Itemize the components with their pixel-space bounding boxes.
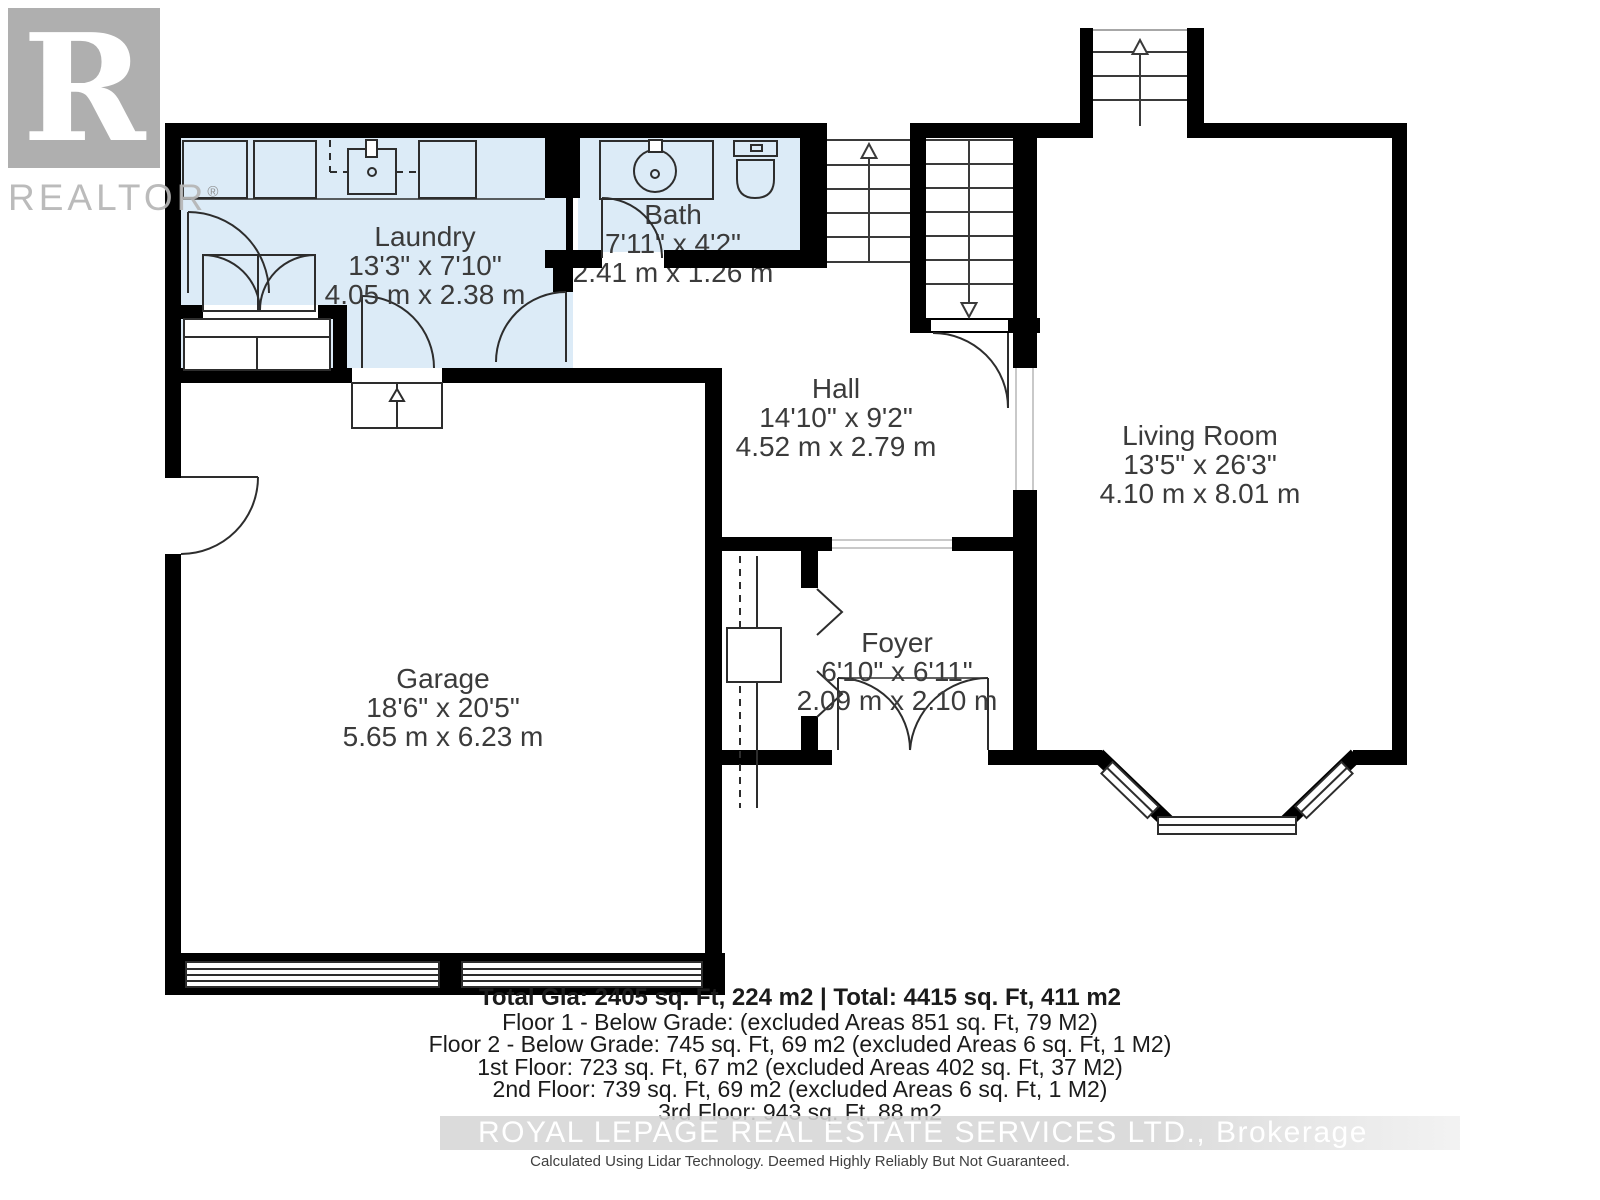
total-area-line: Total Gla: 2405 sq. Ft, 224 m2 | Total: … bbox=[0, 984, 1600, 1011]
room-dims-imperial: 18'6" x 20'5" bbox=[343, 693, 544, 722]
room-dims-imperial: 14'10" x 9'2" bbox=[736, 403, 937, 432]
floor-area-line: 2nd Floor: 739 sq. Ft, 69 m2 (excluded A… bbox=[0, 1078, 1600, 1100]
door-arc bbox=[181, 477, 258, 554]
stairs-down-arrow-icon bbox=[962, 303, 977, 317]
room-label-foyer: Foyer 6'10" x 6'11" 2.09 m x 2.10 m bbox=[797, 628, 998, 715]
door-arc bbox=[203, 255, 260, 311]
room-dims-imperial: 6'10" x 6'11" bbox=[797, 657, 998, 686]
floor-area-line: 1st Floor: 723 sq. Ft, 67 m2 (excluded A… bbox=[0, 1056, 1600, 1078]
room-name: Living Room bbox=[1100, 421, 1301, 450]
room-dims-metric: 4.52 m x 2.79 m bbox=[736, 432, 937, 461]
room-label-garage: Garage 18'6" x 20'5" 5.65 m x 6.23 m bbox=[343, 664, 544, 751]
floor-area-line: Floor 1 - Below Grade: (excluded Areas 8… bbox=[0, 1011, 1600, 1033]
realtor-logo: R REALTOR® bbox=[8, 8, 218, 219]
stairs-down bbox=[926, 140, 1013, 317]
room-dims-metric: 5.65 m x 6.23 m bbox=[343, 722, 544, 751]
registered-trademark-icon: ® bbox=[207, 184, 218, 201]
stairs-upper-flight bbox=[1093, 30, 1187, 126]
dryer-icon bbox=[254, 141, 316, 198]
area-summary: Total Gla: 2405 sq. Ft, 224 m2 | Total: … bbox=[0, 984, 1600, 1123]
room-name: Laundry bbox=[325, 222, 526, 251]
bay-window bbox=[1098, 755, 1356, 834]
realtor-wordmark: REALTOR® bbox=[8, 177, 218, 219]
room-label-hall: Hall 14'10" x 9'2" 4.52 m x 2.79 m bbox=[736, 374, 937, 461]
room-name: Garage bbox=[343, 664, 544, 693]
stairs-up-arrow-icon bbox=[862, 144, 877, 158]
room-dims-metric: 4.10 m x 8.01 m bbox=[1100, 479, 1301, 508]
closet-shelf bbox=[727, 628, 781, 682]
door-arc bbox=[602, 198, 662, 258]
brokerage-watermark: ROYAL LEPAGE REAL ESTATE SERVICES LTD., … bbox=[440, 1116, 1460, 1150]
bath-fixtures bbox=[600, 140, 777, 199]
storage-closet bbox=[184, 319, 330, 370]
faucet-icon bbox=[649, 140, 662, 152]
room-dims-imperial: 13'3" x 7'10" bbox=[325, 251, 526, 280]
room-dims-metric: 4.05 m x 2.38 m bbox=[325, 280, 526, 309]
toilet-tank bbox=[734, 141, 777, 156]
room-dims-imperial: 13'5" x 26'3" bbox=[1100, 450, 1301, 479]
door-arc bbox=[933, 333, 1008, 408]
realtor-logo-icon: R bbox=[8, 8, 160, 168]
garage-entry-steps bbox=[352, 383, 442, 428]
door-arc bbox=[188, 212, 269, 293]
flush-button bbox=[751, 145, 762, 151]
room-dims-metric: 2.09 m x 2.10 m bbox=[797, 686, 998, 715]
room-label-laundry: Laundry 13'3" x 7'10" 4.05 m x 2.38 m bbox=[325, 222, 526, 309]
walls bbox=[165, 28, 1407, 995]
laundry-fixtures bbox=[183, 140, 545, 199]
disclaimer-text: Calculated Using Lidar Technology. Deeme… bbox=[0, 1153, 1600, 1170]
floor-area-line: Floor 2 - Below Grade: 745 sq. Ft, 69 m2… bbox=[0, 1033, 1600, 1055]
stairs-up bbox=[827, 140, 910, 262]
stairs-up-arrow-icon bbox=[1133, 40, 1148, 54]
realtor-logo-letter: R bbox=[23, 14, 146, 162]
faucet-icon bbox=[366, 140, 377, 157]
room-label-living-room: Living Room 13'5" x 26'3" 4.10 m x 8.01 … bbox=[1100, 421, 1301, 508]
appliance-icon bbox=[419, 141, 476, 198]
toilet-icon bbox=[737, 160, 774, 198]
room-name: Hall bbox=[736, 374, 937, 403]
room-name: Foyer bbox=[797, 628, 998, 657]
